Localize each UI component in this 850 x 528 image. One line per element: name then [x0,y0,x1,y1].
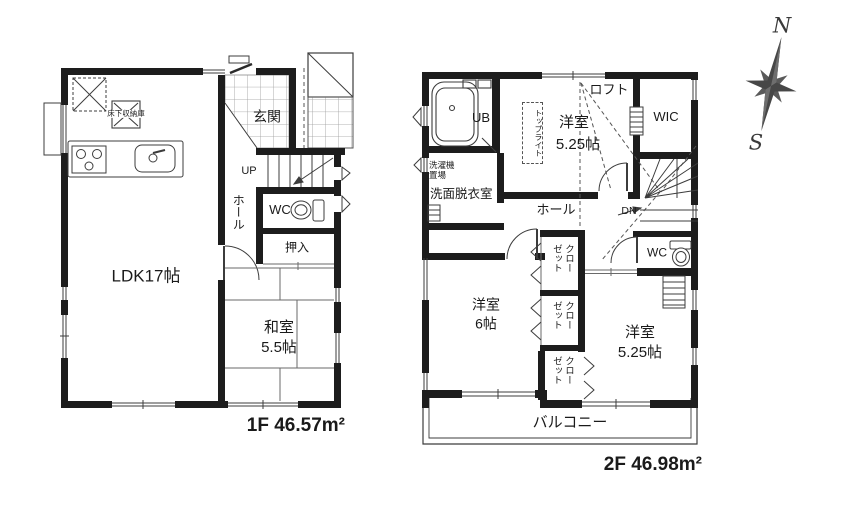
label-washroom: 洗面脱衣室 [430,188,493,202]
compass-rose [736,32,807,137]
floor1-title: 1F 46.57m² [235,416,345,437]
label-washer-place: 洗濯機 置場 [429,160,455,180]
label-up: UP [241,165,256,177]
walls-1f [61,68,345,408]
label-bedroom-left: 洋室 [472,297,500,312]
label-balcony: バルコニー [533,415,608,432]
floor1-plan [44,53,353,409]
label-loft: ロフト [589,83,628,97]
label-wic: WIC [653,110,678,124]
compass-south-label: S [749,131,763,154]
label-bedroom-top: 洋室 [559,115,589,132]
label-bedroom-top-size: 5.25帖 [556,137,600,154]
compass-north-label: N [773,14,791,37]
toilet-icon-2f [670,241,691,266]
sink-icon [135,145,175,172]
label-washer-line1: 洗濯機 [429,160,455,170]
label-washer-line2: 置場 [429,170,455,180]
toilet-icon-1f [291,200,324,221]
stove-icon [72,146,106,173]
label-hall-2f: ホール [536,203,575,217]
label-entrance: 玄関 [253,109,281,124]
label-underfloor-storage: 床下収納庫 [106,110,146,118]
floorplan-page: 床下収納庫 玄関 UP ホール WC 押入 LDK17帖 和室 5.5帖 1F … [0,0,850,528]
label-wc-2f: WC [647,246,667,259]
floorplan-linework [0,0,850,528]
label-hall-1f: ホール [231,194,244,252]
refrigerator-space-icon [73,78,106,111]
label-bedroom-right-size: 5.25帖 [618,345,662,362]
label-wc-1f: WC [269,203,291,217]
label-ub: UB [472,111,490,125]
label-closet-3: クローゼット [548,356,574,390]
label-skylight: トップライト [522,102,543,164]
label-closet-2: クローゼット [548,301,574,335]
label-dn: DN [621,206,636,218]
vanity-icon [428,205,440,221]
label-bedroom-right: 洋室 [625,325,655,342]
stairs-1f [268,155,333,187]
label-bedroom-left-size: 6帖 [475,316,497,331]
label-washitsu: 和室 [264,320,294,337]
label-oshiire: 押入 [285,241,309,254]
label-ldk: LDK17帖 [112,268,181,287]
floor2-title: 2F 46.98m² [592,455,702,476]
kitchen-counter [68,141,183,177]
label-closet-1: クローゼット [548,244,574,278]
label-washitsu-size: 5.5帖 [261,340,297,357]
